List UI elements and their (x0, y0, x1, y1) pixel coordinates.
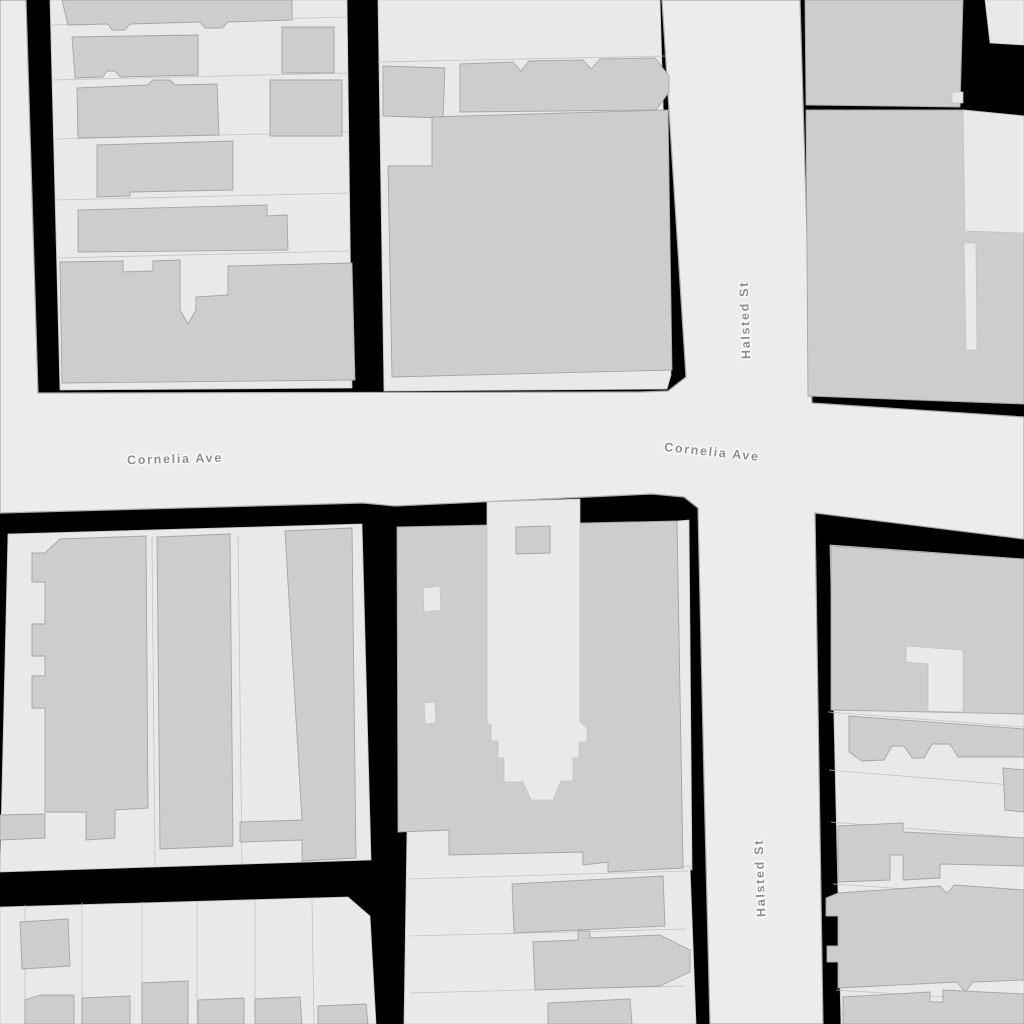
building-footprint (82, 996, 130, 1024)
building-footprint (25, 995, 74, 1024)
street-label-halsted-st-south: Halsted St (752, 839, 769, 918)
lot-cutout (964, 243, 977, 350)
building-footprint (32, 536, 148, 840)
building-footprint (460, 58, 669, 112)
building-footprint (78, 205, 288, 252)
building-footprint (383, 66, 445, 118)
building-footprint (157, 534, 233, 849)
building-footprint (97, 141, 233, 197)
map-viewport[interactable]: Cornelia AveCornelia AveHalsted StHalste… (0, 0, 1024, 1024)
building-footprint (270, 80, 342, 136)
lot-cutout (952, 92, 963, 103)
building-footprint (318, 1004, 368, 1024)
building-footprint (20, 919, 70, 969)
building-footprint (826, 885, 1024, 992)
building-footprint (77, 80, 219, 138)
building-footprint (512, 876, 665, 933)
street-label-cornelia-ave-west: Cornelia Ave (127, 451, 223, 468)
building-footprint (1003, 768, 1024, 812)
lot-cutout (963, 110, 1024, 233)
lot-ne-corner (985, 0, 1024, 45)
building-footprint (255, 997, 302, 1024)
building-footprint (142, 981, 188, 1024)
building-footprint (282, 27, 334, 73)
building-footprint (548, 999, 632, 1024)
building-footprint (516, 526, 550, 554)
map-svg (0, 0, 1024, 1024)
street-label-halsted-st-north: Halsted St (737, 281, 754, 360)
building-footprint (198, 998, 244, 1024)
building-footprint (72, 35, 198, 78)
building-outline-empty (424, 702, 436, 724)
building-footprint (0, 814, 45, 840)
building-footprint (805, 0, 963, 107)
building-outline-empty (423, 586, 441, 612)
building-footprint (831, 546, 1024, 714)
